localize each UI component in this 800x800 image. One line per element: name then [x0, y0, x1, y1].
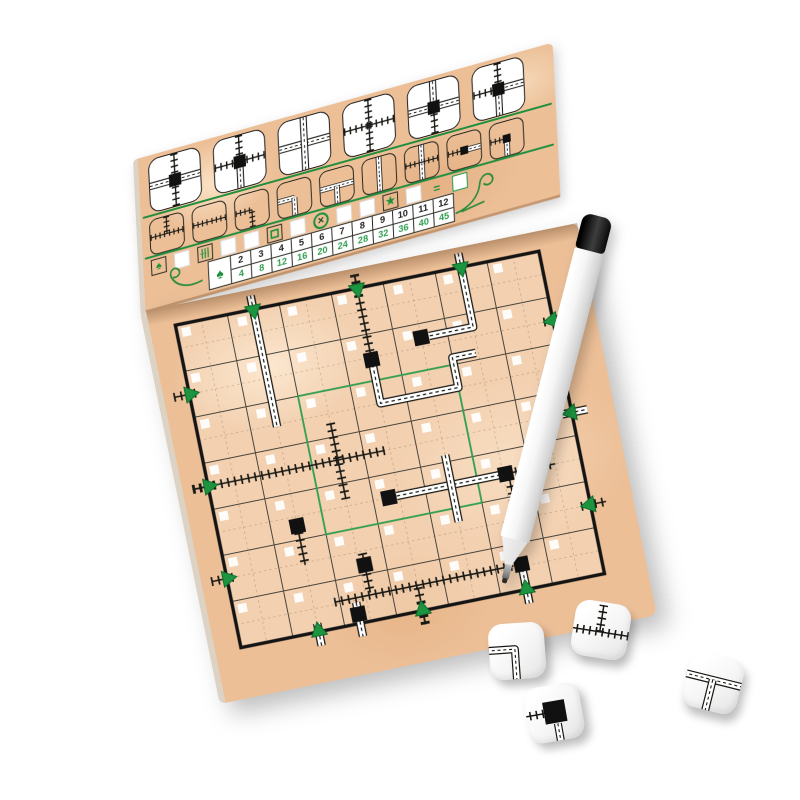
score-column: 932	[373, 211, 395, 244]
route-die-station	[522, 681, 587, 746]
score-column: 412	[271, 239, 293, 272]
pen-point	[501, 577, 507, 583]
score-column: 1036	[393, 205, 415, 238]
score-column: 620	[312, 228, 334, 261]
score-column: 1140	[413, 199, 435, 232]
route-die-rail-t	[569, 598, 633, 662]
vine-flourish-icon	[167, 253, 207, 298]
score-column: 724	[332, 222, 354, 255]
tree-icon: ♠	[151, 256, 167, 276]
score-column: 1245	[433, 194, 454, 226]
die-face-glyph	[522, 681, 587, 746]
die-face-glyph	[487, 621, 547, 681]
product-photo-scene: ♠×★= ♠2438412516620724828932103611401245	[0, 0, 800, 800]
score-column: 516	[292, 233, 314, 266]
route-die-road-t	[679, 649, 747, 717]
die-face-glyph	[679, 649, 747, 717]
score-column: 828	[352, 216, 374, 249]
route-die-road-curve	[487, 621, 547, 681]
exits-tree-icon: ♠	[209, 256, 233, 289]
score-column: 38	[251, 245, 273, 278]
score-column: 24	[231, 250, 253, 283]
die-face-glyph	[569, 598, 633, 662]
